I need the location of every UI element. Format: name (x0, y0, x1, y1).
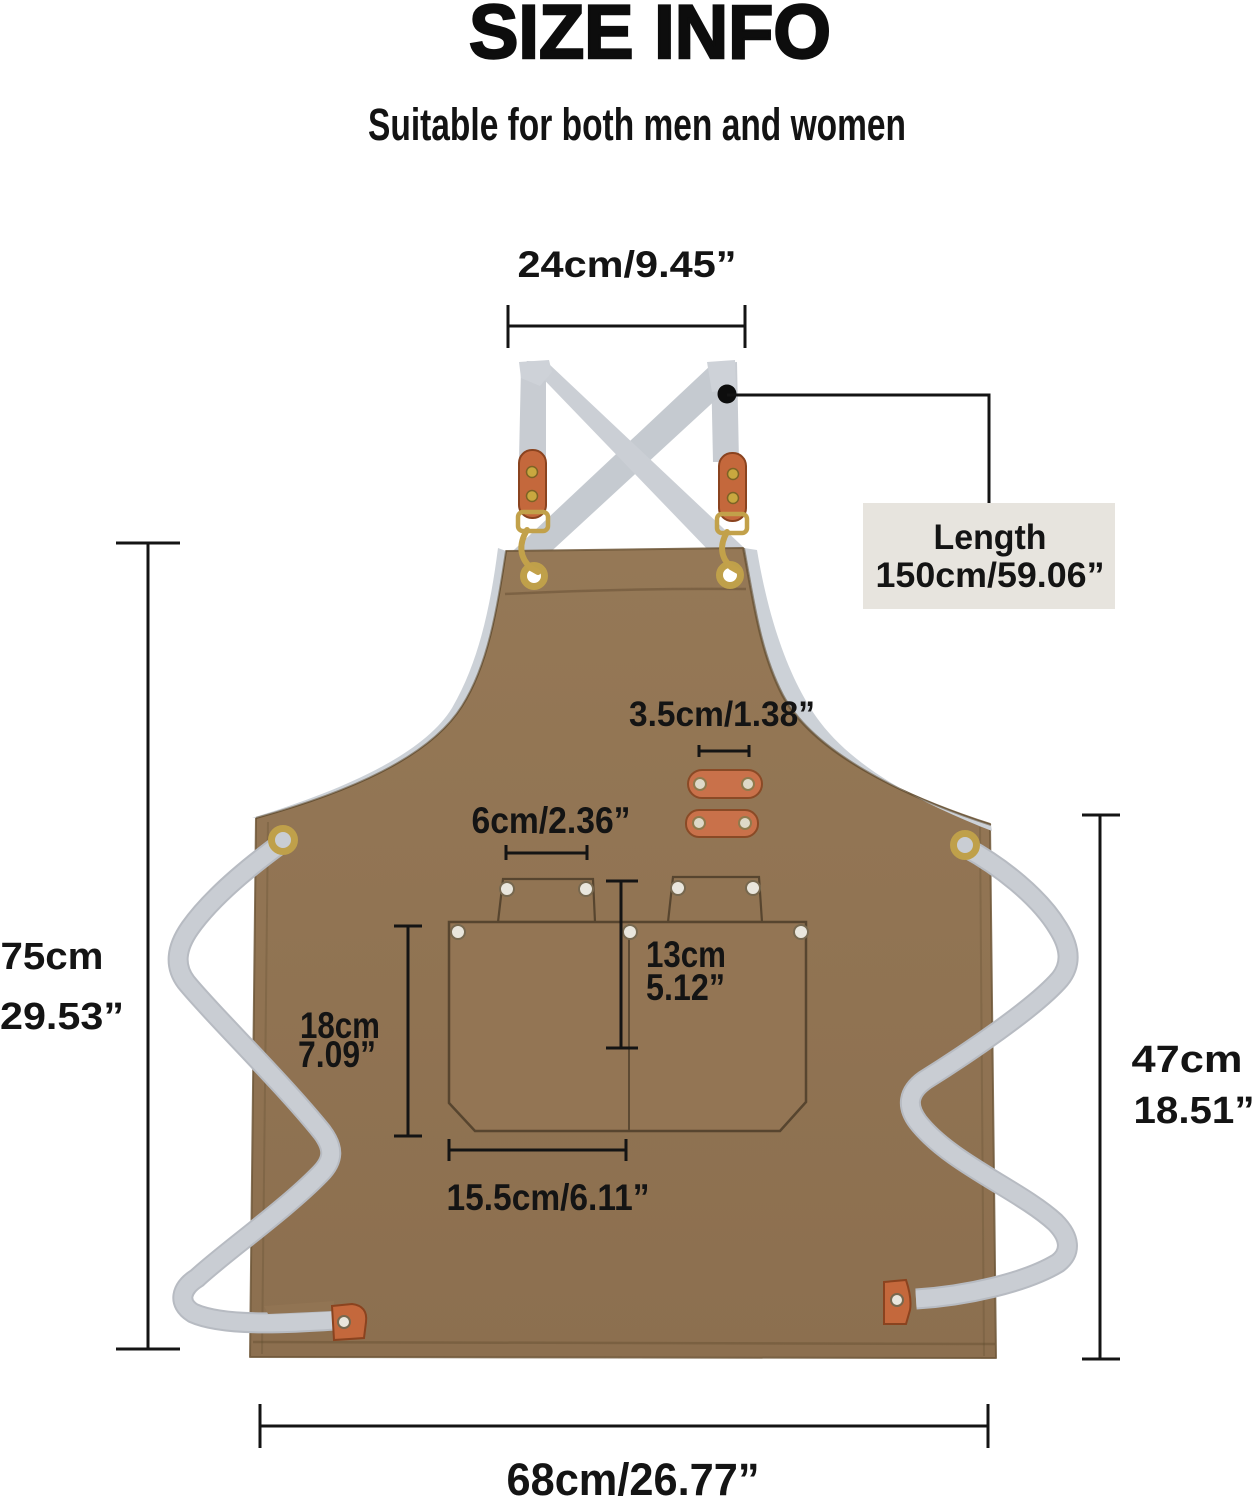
svg-text:5.12”: 5.12” (646, 967, 725, 1008)
svg-text:Length: Length (934, 518, 1047, 557)
svg-text:75cm: 75cm (1, 936, 104, 978)
svg-text:SIZE INFO: SIZE INFO (469, 0, 831, 75)
svg-text:29.53”: 29.53” (0, 996, 124, 1038)
svg-text:24cm/9.45”: 24cm/9.45” (518, 244, 737, 285)
svg-text:18.51”: 18.51” (1134, 1090, 1255, 1132)
svg-text:Suitable for both men and wome: Suitable for both men and women (368, 99, 906, 150)
svg-text:68cm/26.77”: 68cm/26.77” (507, 1454, 760, 1500)
svg-text:47cm: 47cm (1132, 1039, 1243, 1081)
svg-text:150cm/59.06”: 150cm/59.06” (876, 556, 1105, 595)
svg-text:6cm/2.36”: 6cm/2.36” (472, 800, 631, 841)
svg-text:15.5cm/6.11”: 15.5cm/6.11” (447, 1177, 650, 1218)
svg-text:3.5cm/1.38”: 3.5cm/1.38” (629, 695, 815, 734)
svg-text:7.09”: 7.09” (298, 1034, 376, 1075)
